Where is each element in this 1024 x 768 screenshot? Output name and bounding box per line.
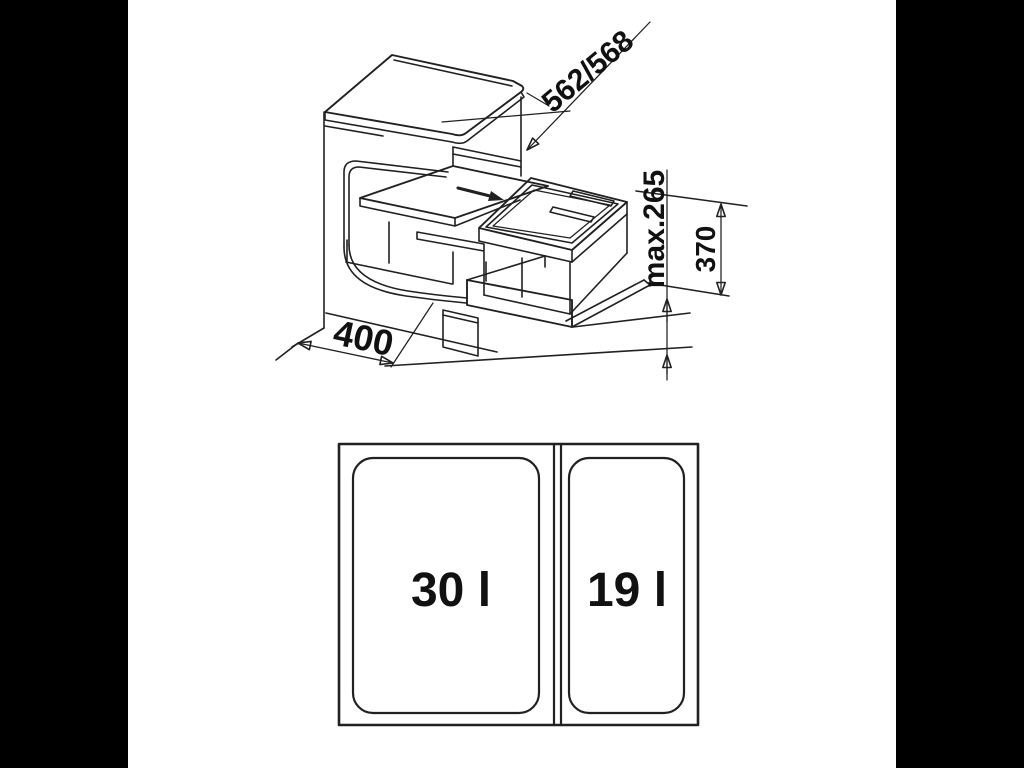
interior-back-rail-top [453,147,521,161]
dimension-label-width: 400 [330,311,397,364]
product-dimension-diagram: 562/568 max.265 370 400 [0,0,1024,768]
frame-bottom-rail-inner [566,280,644,321]
pull-out-arrow-icon [458,188,504,201]
bin-body-bottom-right [570,253,627,314]
frame-left-rail [467,256,545,280]
width-extension-right [391,303,433,367]
floor-line-long [385,347,692,366]
dimension-unit-height: 370 [690,204,721,295]
worktop-back-inner-edge [394,60,512,86]
pull-out-rail-bar [417,232,484,251]
shelf-top-face [360,166,548,218]
arrow-shaft [458,188,490,196]
interior-back-rail-bottom [453,154,521,167]
frame-bottom-extension [573,313,690,327]
dimension-label-unit-height: 370 [690,226,721,273]
floor-left-stub [276,343,298,360]
reference-lines [385,191,747,366]
rim-band-front-edge [479,241,572,262]
bin-right-capacity-label: 19 l [587,564,667,617]
cable-sweep-inner [349,245,467,298]
dimension-depth: 562/568 [442,22,650,150]
dimension-label-depth: 562/568 [536,24,640,119]
dimension-width: 400 [298,303,433,367]
carcass-top-edge [325,126,383,136]
frame-bottom-rail-outer [572,285,650,327]
isometric-view: 562/568 max.265 370 400 [276,22,747,380]
bin-handle-notch-front [550,207,594,222]
bin-left-capacity-label: 30 l [411,564,491,617]
top-view: 30 l 19 l [339,444,698,725]
rim-band-right-edge [572,214,627,262]
dimension-label-max-height: max.265 [638,170,671,288]
screenshot-canvas: 562/568 max.265 370 400 [0,0,1024,768]
pull-out-frame [443,256,650,356]
arrow-head [488,191,504,201]
